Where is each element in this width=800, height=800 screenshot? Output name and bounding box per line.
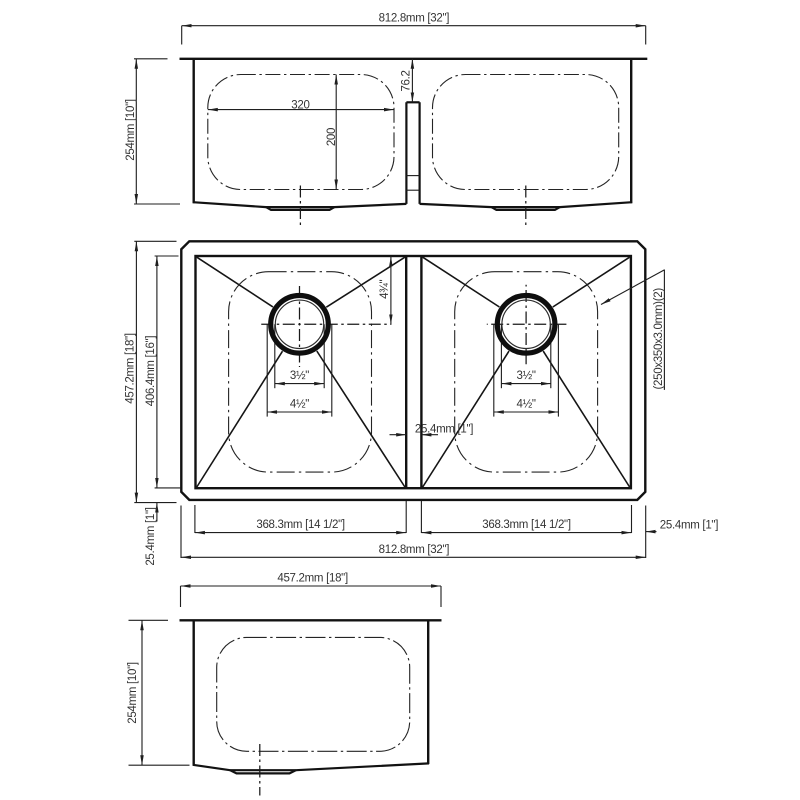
svg-text:368.3mm [14 1/2"]: 368.3mm [14 1/2"] <box>256 519 345 531</box>
svg-text:457.2mm [18"]: 457.2mm [18"] <box>277 573 348 585</box>
svg-text:254mm [10"]: 254mm [10"] <box>125 99 137 161</box>
svg-text:3½": 3½" <box>290 370 309 382</box>
svg-text:(250x350x3.0mm)(2): (250x350x3.0mm)(2) <box>653 288 665 390</box>
svg-text:320: 320 <box>291 99 309 111</box>
svg-text:4½": 4½" <box>290 398 309 410</box>
svg-text:76.2: 76.2 <box>401 70 413 91</box>
svg-text:3½": 3½" <box>517 370 536 382</box>
svg-text:4¾": 4¾" <box>379 279 391 298</box>
svg-text:812.8mm [32"]: 812.8mm [32"] <box>379 544 450 556</box>
svg-text:4½": 4½" <box>517 398 536 410</box>
svg-text:25.4mm [1"]: 25.4mm [1"] <box>145 507 157 565</box>
svg-text:812.8mm [32"]: 812.8mm [32"] <box>379 12 450 24</box>
svg-text:200: 200 <box>326 128 338 146</box>
svg-text:254mm [10"]: 254mm [10"] <box>127 662 139 724</box>
svg-text:368.3mm [14 1/2"]: 368.3mm [14 1/2"] <box>482 519 571 531</box>
svg-text:457.2mm [18"]: 457.2mm [18"] <box>125 333 137 404</box>
svg-text:406.4mm [16"]: 406.4mm [16"] <box>145 336 157 407</box>
svg-text:25.4mm [1"]: 25.4mm [1"] <box>415 423 473 435</box>
svg-text:25.4mm [1"]: 25.4mm [1"] <box>660 520 718 532</box>
